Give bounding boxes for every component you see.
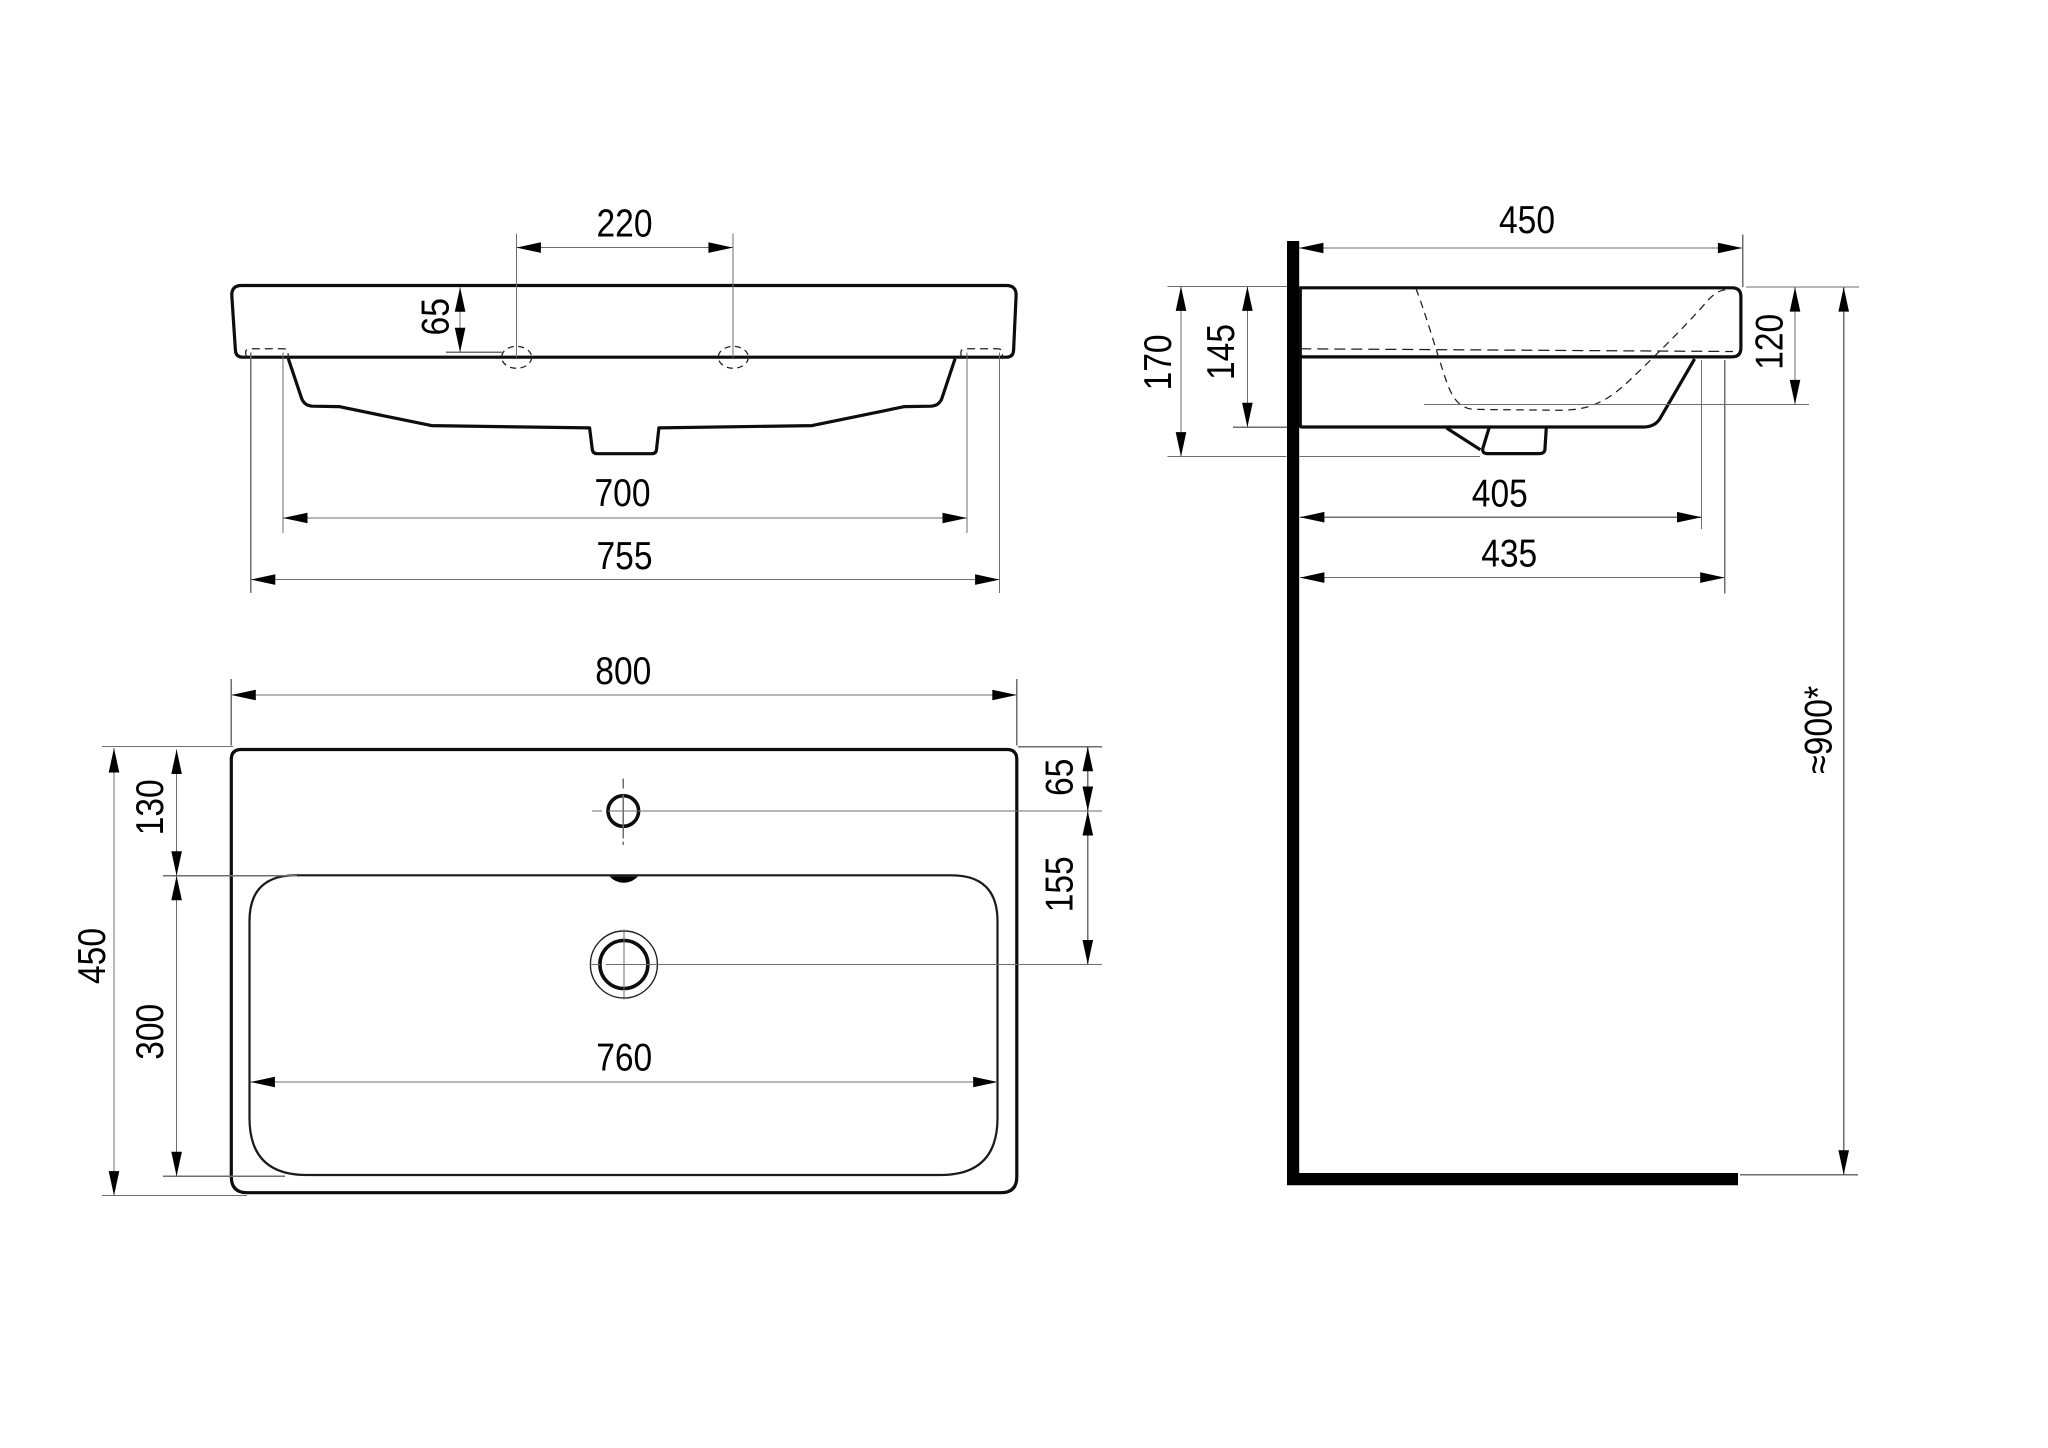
svg-text:405: 405 [1472, 472, 1528, 515]
svg-text:220: 220 [597, 203, 653, 246]
svg-text:130: 130 [129, 779, 172, 835]
svg-text:760: 760 [596, 1036, 652, 1079]
svg-text:≈900*: ≈900* [1797, 686, 1840, 774]
svg-text:435: 435 [1481, 533, 1537, 576]
svg-text:755: 755 [597, 535, 653, 578]
svg-text:155: 155 [1038, 856, 1081, 912]
svg-text:65: 65 [414, 298, 457, 336]
svg-text:700: 700 [595, 472, 651, 515]
svg-text:120: 120 [1749, 314, 1792, 370]
svg-text:65: 65 [1038, 759, 1081, 797]
svg-text:450: 450 [71, 928, 114, 984]
svg-text:450: 450 [1499, 199, 1555, 242]
svg-text:300: 300 [129, 1004, 172, 1060]
svg-text:800: 800 [595, 650, 651, 693]
svg-text:145: 145 [1200, 324, 1243, 380]
svg-text:170: 170 [1137, 334, 1180, 390]
